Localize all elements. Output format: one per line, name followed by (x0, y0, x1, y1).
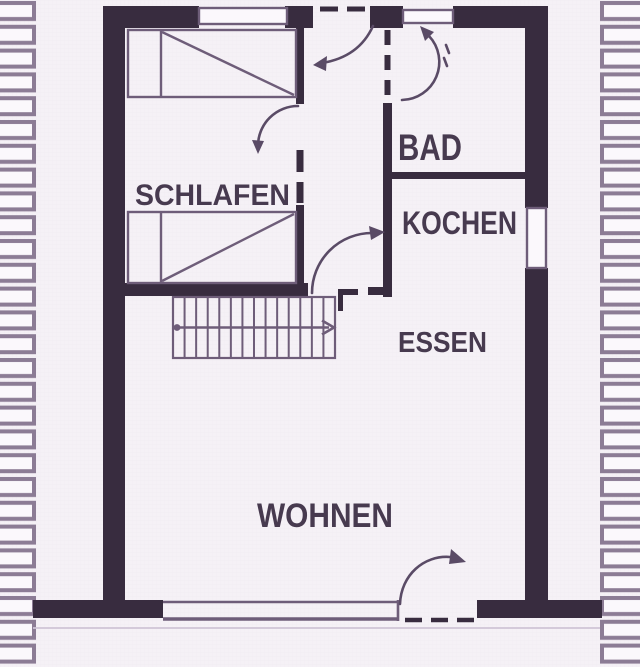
wall-top-pier-2 (370, 6, 403, 28)
wall-bottom-left (33, 600, 163, 618)
window-right (527, 208, 546, 268)
wall-stub-a-tick (338, 289, 343, 311)
wall-left (103, 6, 125, 618)
room-label-bad: BAD (398, 127, 462, 168)
window-top-right (403, 10, 453, 23)
wall-top-left (103, 6, 199, 28)
wall-kochen-west (383, 103, 392, 297)
room-label-wohnen: WOHNEN (257, 497, 393, 535)
room-label-kochen: KOCHEN (402, 205, 517, 241)
wall-schlafen-east-lower (296, 205, 304, 283)
floor-plan-svg: SCHLAFEN BAD KOCHEN ESSEN WOHNEN (0, 0, 640, 667)
wall-bad-kochen-divider (392, 172, 525, 179)
wall-bottom-right (477, 600, 602, 618)
room-label-schlafen: SCHLAFEN (135, 179, 290, 212)
room-label-essen: ESSEN (398, 327, 487, 359)
floor-plan-page: SCHLAFEN BAD KOCHEN ESSEN WOHNEN (0, 0, 640, 667)
wall-top-pier-1 (285, 6, 313, 28)
wall-right-lower (525, 268, 548, 618)
wall-right-upper (525, 6, 548, 208)
window-top-left (199, 8, 287, 24)
stairs-walkline-start-dot (174, 324, 181, 331)
wall-schlafen-south (125, 283, 308, 296)
wall-schlafen-east-upper (296, 28, 304, 104)
